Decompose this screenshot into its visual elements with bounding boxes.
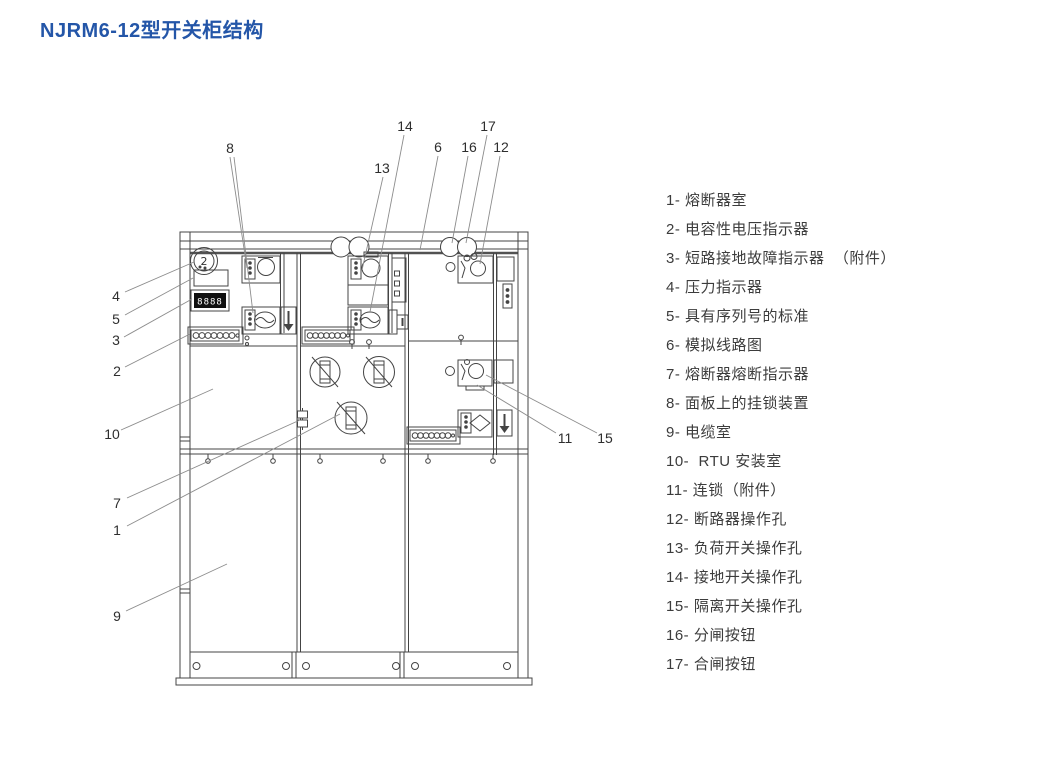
legend-item-6: 6- 模拟线路图: [666, 331, 896, 360]
fuse-symbol-2: [364, 357, 395, 388]
legend-item-5: 5- 具有序列号的标准: [666, 302, 896, 331]
callout-6: 6: [434, 140, 442, 154]
dotted-element-right: [503, 284, 512, 308]
voltage-indicator-strip-right: [407, 427, 460, 444]
legend-item-13: 13- 负荷开关操作孔: [666, 534, 896, 563]
legend-item-12: 12- 断路器操作孔: [666, 505, 896, 534]
callout-15: 15: [597, 431, 613, 445]
leader-lines: [121, 135, 597, 611]
callout-5: 5: [112, 312, 120, 326]
legend-item-14: 14- 接地开关操作孔: [666, 563, 896, 592]
callout-16: 16: [461, 140, 477, 154]
callout-14: 14: [397, 119, 413, 133]
mechanism-left-lower: [242, 307, 280, 334]
side-plate-middle: [392, 258, 406, 302]
legend: 1- 熔断器室 2- 电容性电压指示器 3- 短路接地故障指示器 （附件） 4-…: [666, 186, 896, 679]
callout-2: 2: [113, 364, 121, 378]
display-digits: 8888: [197, 298, 223, 308]
legend-item-3: 3- 短路接地故障指示器 （附件）: [666, 244, 896, 273]
callout-8: 8: [226, 141, 234, 155]
legend-item-11: 11- 连锁（附件）: [666, 476, 896, 505]
callout-1: 1: [113, 523, 121, 537]
down-arrow-right: [497, 410, 512, 436]
fuse-symbol-1: [310, 357, 340, 387]
callout-3: 3: [112, 333, 120, 347]
gauge-needle-glyph: 2: [201, 255, 208, 268]
voltage-indicator-strip-left: [188, 327, 243, 344]
callout-4: 4: [112, 289, 120, 303]
cabinet-structure-diagram: 2 8888: [0, 0, 1064, 777]
legend-item-9: 9- 电缆室: [666, 418, 896, 447]
legend-item-2: 2- 电容性电压指示器: [666, 215, 896, 244]
down-arrow-left: [281, 307, 296, 334]
legend-item-4: 4- 压力指示器: [666, 273, 896, 302]
page: NJRM6-12型开关柜结构: [0, 0, 1064, 777]
callout-12: 12: [493, 140, 509, 154]
callout-7: 7: [113, 496, 121, 510]
fuse-symbol-3: [335, 402, 367, 434]
voltage-indicator-strip-middle: [302, 327, 354, 344]
callout-10: 10: [104, 427, 120, 441]
earthing-mechanism-lower: [458, 410, 492, 437]
legend-item-1: 1- 熔断器室: [666, 186, 896, 215]
callout-11: 11: [558, 431, 573, 445]
callout-17: 17: [480, 119, 496, 133]
legend-item-10: 10- RTU 安装室: [666, 447, 896, 476]
legend-item-16: 16- 分闸按钮: [666, 621, 896, 650]
isolator-mechanism-mid: [446, 360, 514, 391]
callout-9: 9: [113, 609, 121, 623]
legend-item-17: 17- 合闸按钮: [666, 650, 896, 679]
mechanism-middle-upper: [348, 252, 388, 305]
breaker-mechanism-upper: [446, 254, 514, 284]
legend-item-7: 7- 熔断器熔断指示器: [666, 360, 896, 389]
callout-13: 13: [374, 161, 390, 175]
fuse-blown-indicator: [298, 408, 308, 430]
legend-item-8: 8- 面板上的挂锁装置: [666, 389, 896, 418]
legend-item-15: 15- 隔离开关操作孔: [666, 592, 896, 621]
